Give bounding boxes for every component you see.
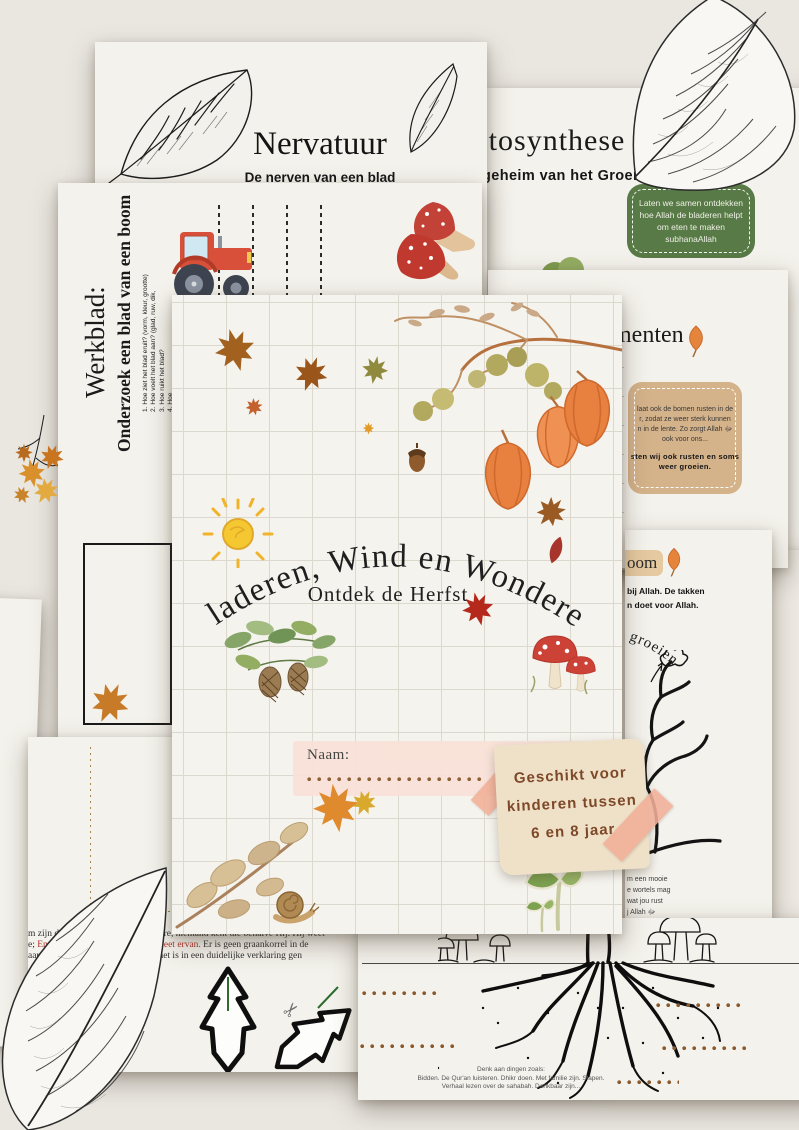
red-mushrooms-icon <box>395 200 482 300</box>
autumn-branch-icon <box>10 413 74 511</box>
page-edge-right <box>770 550 799 938</box>
roots-hint-text: Denk aan dingen zoals: Bidden. De Qur'an… <box>358 1066 664 1092</box>
maple-leaf-icon <box>362 422 375 435</box>
fotosynthese-badge: Laten we samen ontdekken hoe Allah de bl… <box>627 184 755 258</box>
maple-leaf-icon <box>360 355 390 385</box>
maple-leaf-icon <box>212 327 258 373</box>
maple-leaf-icon <box>350 789 378 817</box>
list-item: 2. Hoe voelt het blad aan? (glad, ruw, d… <box>150 274 158 412</box>
tractor-icon <box>172 222 260 306</box>
boom-line1: bij Allah. De takken <box>627 586 705 596</box>
leaf-sketch-icon <box>393 58 473 163</box>
dotted-writing-line <box>362 991 442 996</box>
experimenten-title: menten <box>613 322 684 349</box>
physalis-branch-icon <box>377 295 622 513</box>
maple-leaf-icon <box>244 397 264 417</box>
boom-badge: oom <box>625 550 663 576</box>
pinecone-leaves-icon <box>218 610 343 705</box>
cut-line <box>320 205 322 300</box>
skeleton-leaf-icon <box>608 0 799 192</box>
boom-line2: n doet voor Allah. <box>627 600 698 610</box>
cut-line <box>286 205 288 300</box>
list-item: 1. Hoe ziet het blad eruit? (vorm, kleur… <box>142 274 150 412</box>
cover-subtitle: Ontdek de Herfst <box>178 582 598 607</box>
worksheet-collage: Fotosynthese Het geheim van het Groene B… <box>0 0 799 1130</box>
werkblad-title: Werkblad: <box>80 286 111 398</box>
dotted-writing-line <box>656 1003 741 1008</box>
red-mushrooms-icon <box>525 620 597 698</box>
skeleton-leaf-icon <box>0 856 186 1130</box>
dotted-writing-line <box>662 1046 752 1051</box>
list-item: 3. Hoe ruikt het blad? <box>159 274 167 412</box>
page-boom: oom bij Allah. De takken n doet voor All… <box>625 530 772 958</box>
werkblad-list: 1. Hoe ziet het blad eruit? (vorm, kleur… <box>142 274 176 412</box>
werkblad-subtitle: Onderzoek een blad van een boom <box>114 195 135 452</box>
orange-leaf-icon <box>665 546 683 578</box>
experimenten-box: laat ook de bomen rusten in de r, zodat … <box>628 382 742 494</box>
dotted-writing-line <box>360 1044 455 1049</box>
maple-leaf-icon <box>88 681 132 725</box>
acorn-icon <box>408 443 426 472</box>
page-roots: Denk aan dingen zoals: Bidden. De Qur'an… <box>358 918 799 1100</box>
orange-leaf-icon <box>686 324 706 358</box>
maple-leaf-icon <box>292 355 330 393</box>
name-label: Naam: <box>307 747 349 764</box>
boom-bottom-text: m een mooie e wortels mag wat jou rust j… <box>627 874 671 918</box>
snail-icon <box>276 892 319 920</box>
